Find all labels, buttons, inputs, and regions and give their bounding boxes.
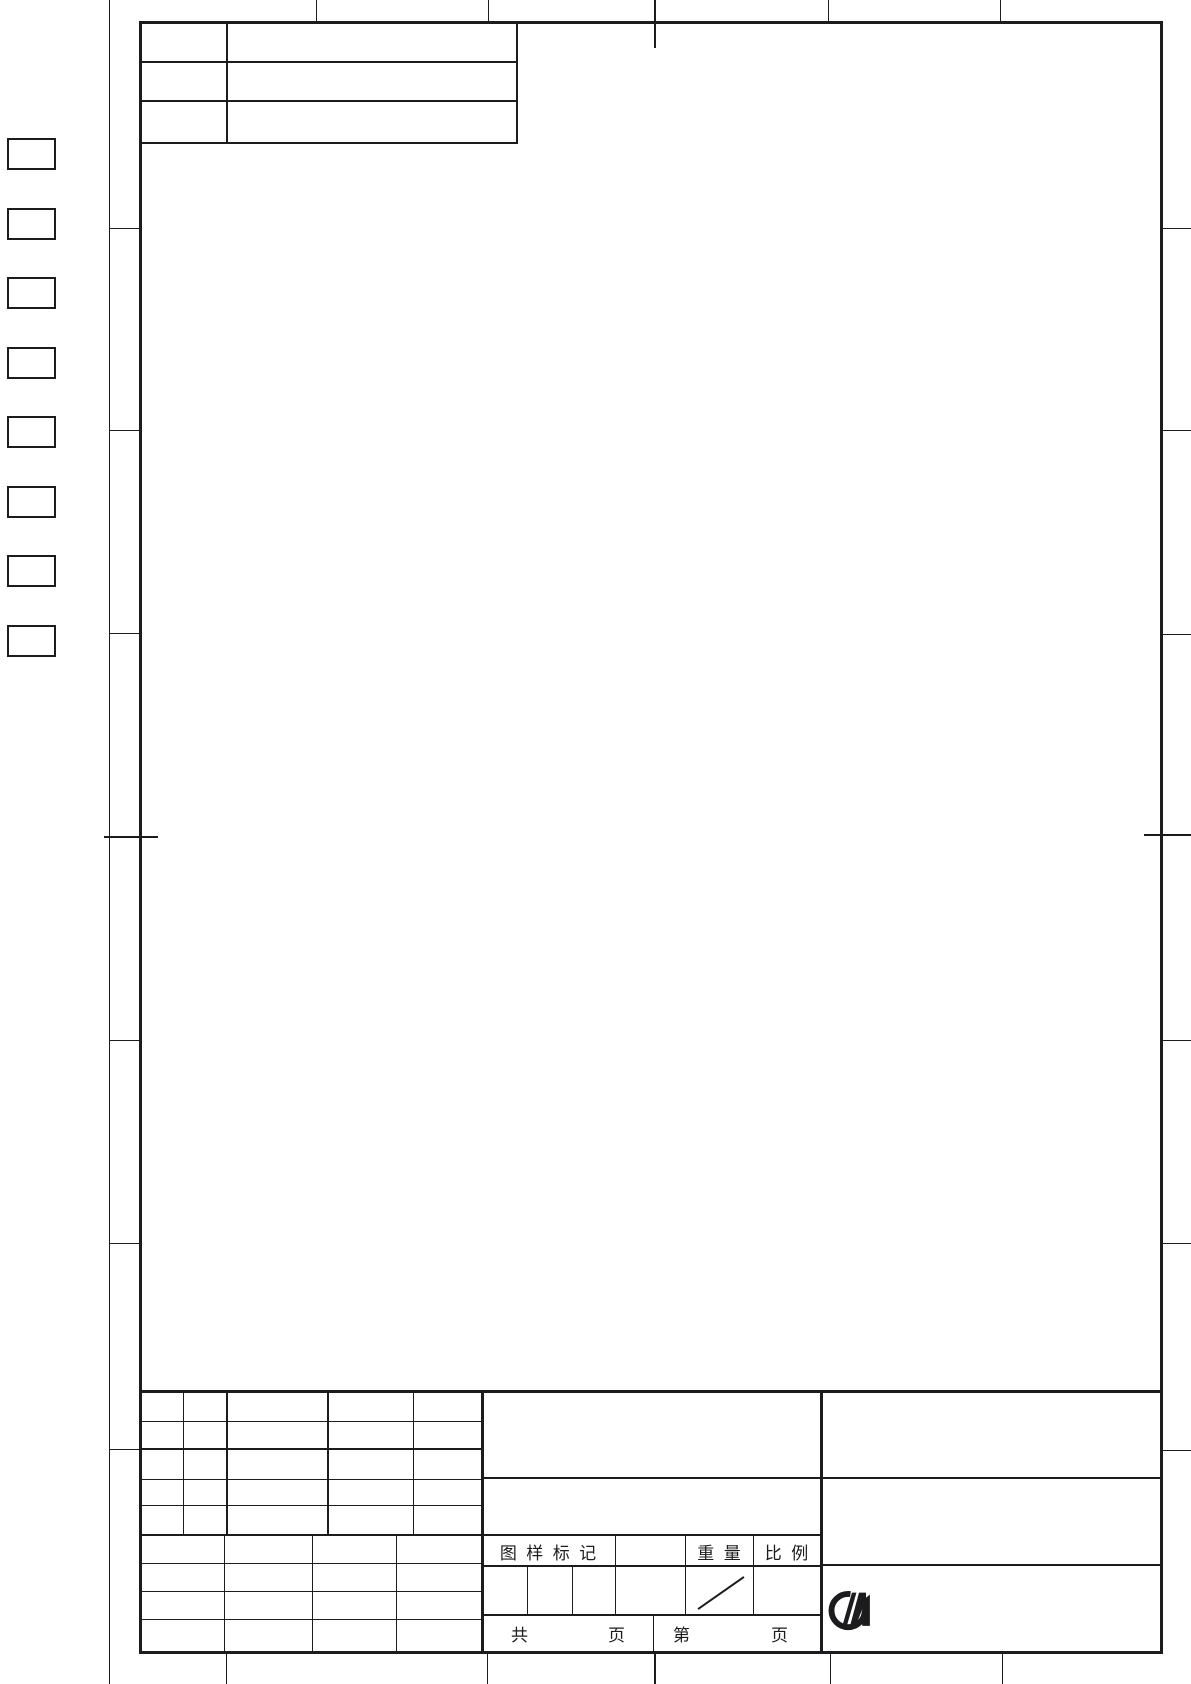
registration-mark [7, 416, 56, 448]
table-line [527, 1565, 528, 1616]
fold-mark [109, 1243, 141, 1244]
table-line [753, 1534, 754, 1616]
registration-mark [7, 277, 56, 309]
table-line [327, 1390, 329, 1536]
fold-mark [109, 430, 141, 431]
registration-mark [7, 555, 56, 587]
table-line [312, 1534, 313, 1652]
fold-mark [109, 1449, 141, 1450]
page-number-prefix: 第 [673, 1621, 690, 1646]
page-number-cell: 第 页 [653, 1615, 822, 1651]
table-line [183, 1390, 184, 1536]
registration-mark [7, 347, 56, 379]
left-trim-line [109, 0, 110, 1684]
table-line [413, 1390, 414, 1536]
registration-mark [7, 486, 56, 518]
registration-mark [7, 208, 56, 240]
center-mark-right [1144, 834, 1191, 836]
fold-mark [828, 0, 829, 23]
drawing-mark-label: 图 样 标 记 [483, 1537, 615, 1565]
title-block-top-line [141, 1390, 1161, 1393]
fold-mark [487, 1652, 488, 1684]
fold-mark [109, 1040, 141, 1041]
table-line [226, 1390, 228, 1536]
total-pages-cell: 共 页 [483, 1615, 653, 1651]
drawing-sheet: 图 样 标 记 重 量 比 例 共 页 第 页 [0, 0, 1191, 1684]
weight-label: 重 量 [687, 1537, 753, 1565]
center-mark-bottom [654, 1652, 656, 1684]
table-line [141, 1479, 483, 1480]
fold-mark [1161, 430, 1191, 431]
fold-mark [109, 633, 141, 634]
fold-mark [1161, 1450, 1191, 1451]
table-line [822, 1564, 1161, 1566]
total-pages-prefix: 共 [511, 1621, 528, 1646]
fold-mark [1161, 1040, 1191, 1041]
fold-mark [109, 228, 141, 229]
fold-mark [226, 1652, 227, 1684]
sheet-frame-border [139, 21, 1163, 1654]
midea-logo [827, 1581, 891, 1635]
table-line [226, 23, 228, 144]
center-mark-left [104, 836, 158, 838]
table-line [615, 1534, 616, 1616]
table-line [685, 1534, 686, 1616]
table-line [141, 1421, 483, 1422]
fold-mark [1161, 634, 1191, 635]
registration-mark [7, 625, 56, 657]
fold-mark [1161, 228, 1191, 229]
center-mark-top [654, 0, 656, 48]
table-line [141, 142, 518, 144]
table-line [141, 1448, 483, 1450]
fold-mark [488, 0, 489, 23]
fold-mark [1161, 1243, 1191, 1244]
total-pages-suffix: 页 [608, 1621, 625, 1646]
registration-mark [7, 138, 56, 170]
table-line [572, 1565, 573, 1616]
fold-mark [1002, 1652, 1003, 1684]
table-line [516, 23, 518, 144]
table-line [141, 1505, 483, 1506]
table-line [820, 1390, 823, 1652]
table-line [396, 1534, 397, 1652]
fold-mark [316, 0, 317, 23]
table-line [483, 1565, 822, 1567]
table-line [141, 100, 518, 102]
fold-mark [1000, 0, 1001, 23]
fold-mark [830, 1652, 831, 1684]
scale-label: 比 例 [755, 1537, 820, 1565]
page-number-suffix: 页 [771, 1621, 788, 1646]
table-line [141, 61, 518, 63]
table-line [481, 1390, 484, 1652]
table-line [224, 1534, 225, 1652]
